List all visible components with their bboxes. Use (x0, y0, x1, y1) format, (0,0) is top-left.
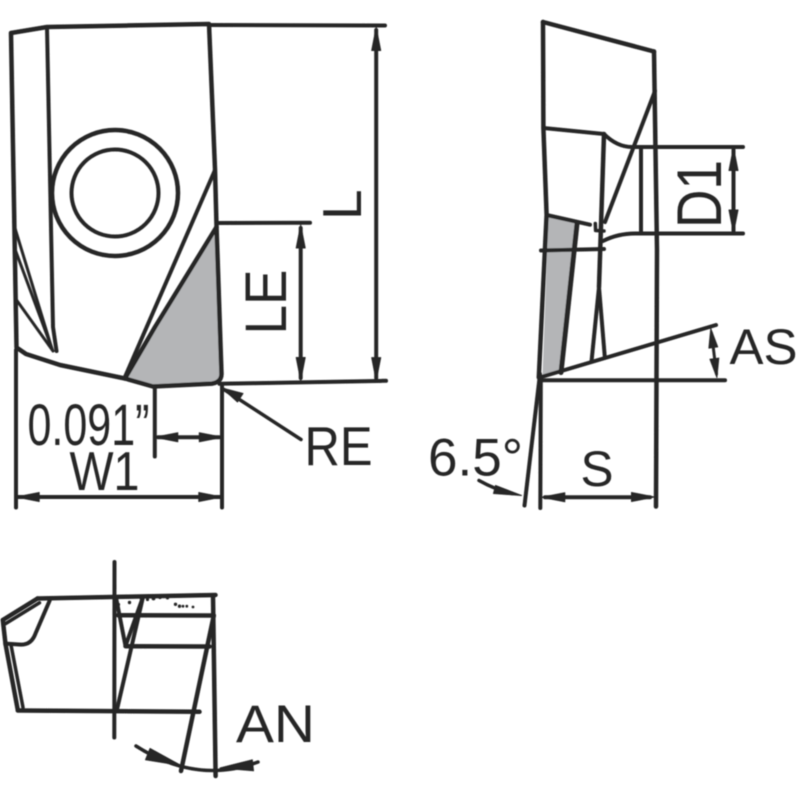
svg-text:L: L (311, 189, 373, 220)
svg-text:W1: W1 (70, 441, 140, 502)
svg-text:S: S (581, 440, 614, 497)
svg-text:RE: RE (305, 415, 373, 477)
svg-text:6.5°: 6.5° (428, 429, 523, 488)
svg-text:D1: D1 (665, 160, 735, 228)
svg-text:LE: LE (234, 270, 299, 335)
svg-text:AN: AN (236, 695, 315, 754)
svg-text:AS: AS (730, 319, 798, 375)
